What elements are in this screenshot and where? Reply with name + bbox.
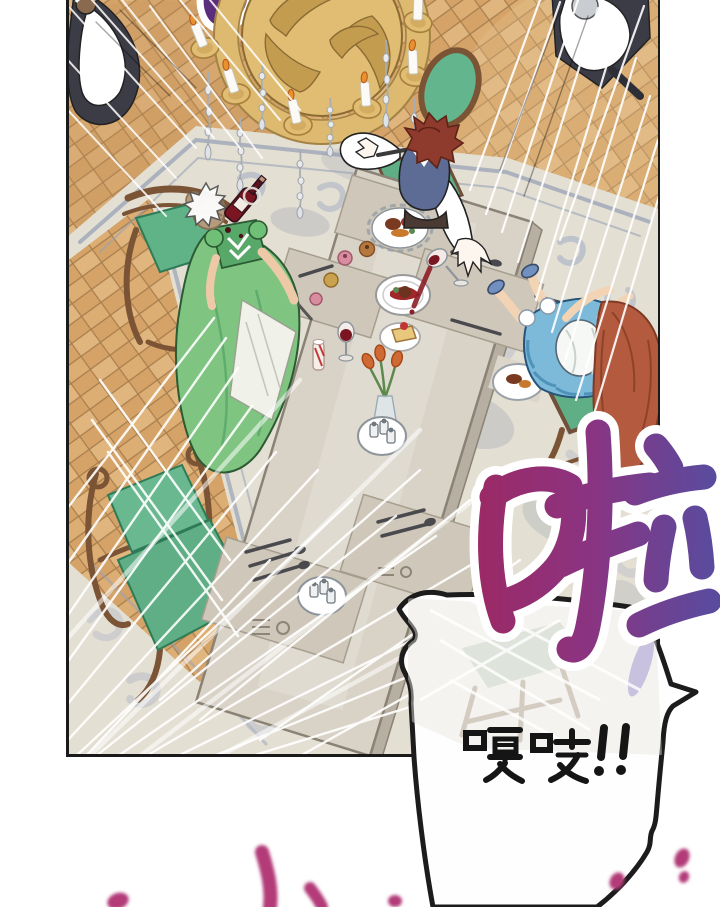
exclamation-dot — [616, 765, 626, 775]
caster-tray-2 — [298, 577, 346, 615]
comic-page — [0, 0, 720, 907]
exclamation-dot — [594, 766, 604, 776]
plate-cake — [380, 322, 420, 351]
comic-canvas — [0, 0, 720, 907]
striped-glass — [313, 340, 324, 371]
